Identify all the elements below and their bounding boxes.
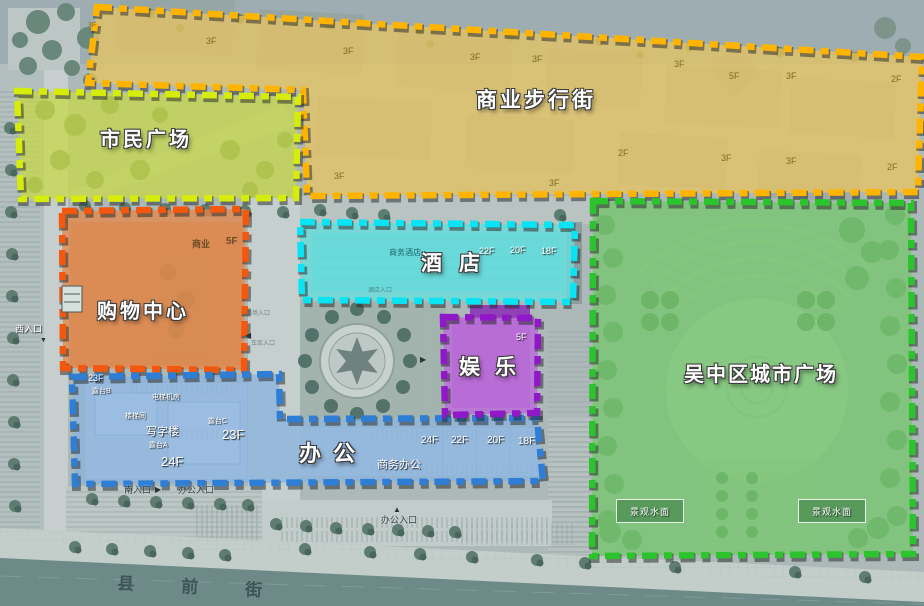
- site-plan: 县前街 商业步行街市民广场吴中区城市广场酒店购物中心办公娱乐3F3F3F3F3F…: [0, 0, 924, 606]
- west-entrance-structure: [62, 286, 82, 312]
- overlay-details: [0, 0, 924, 606]
